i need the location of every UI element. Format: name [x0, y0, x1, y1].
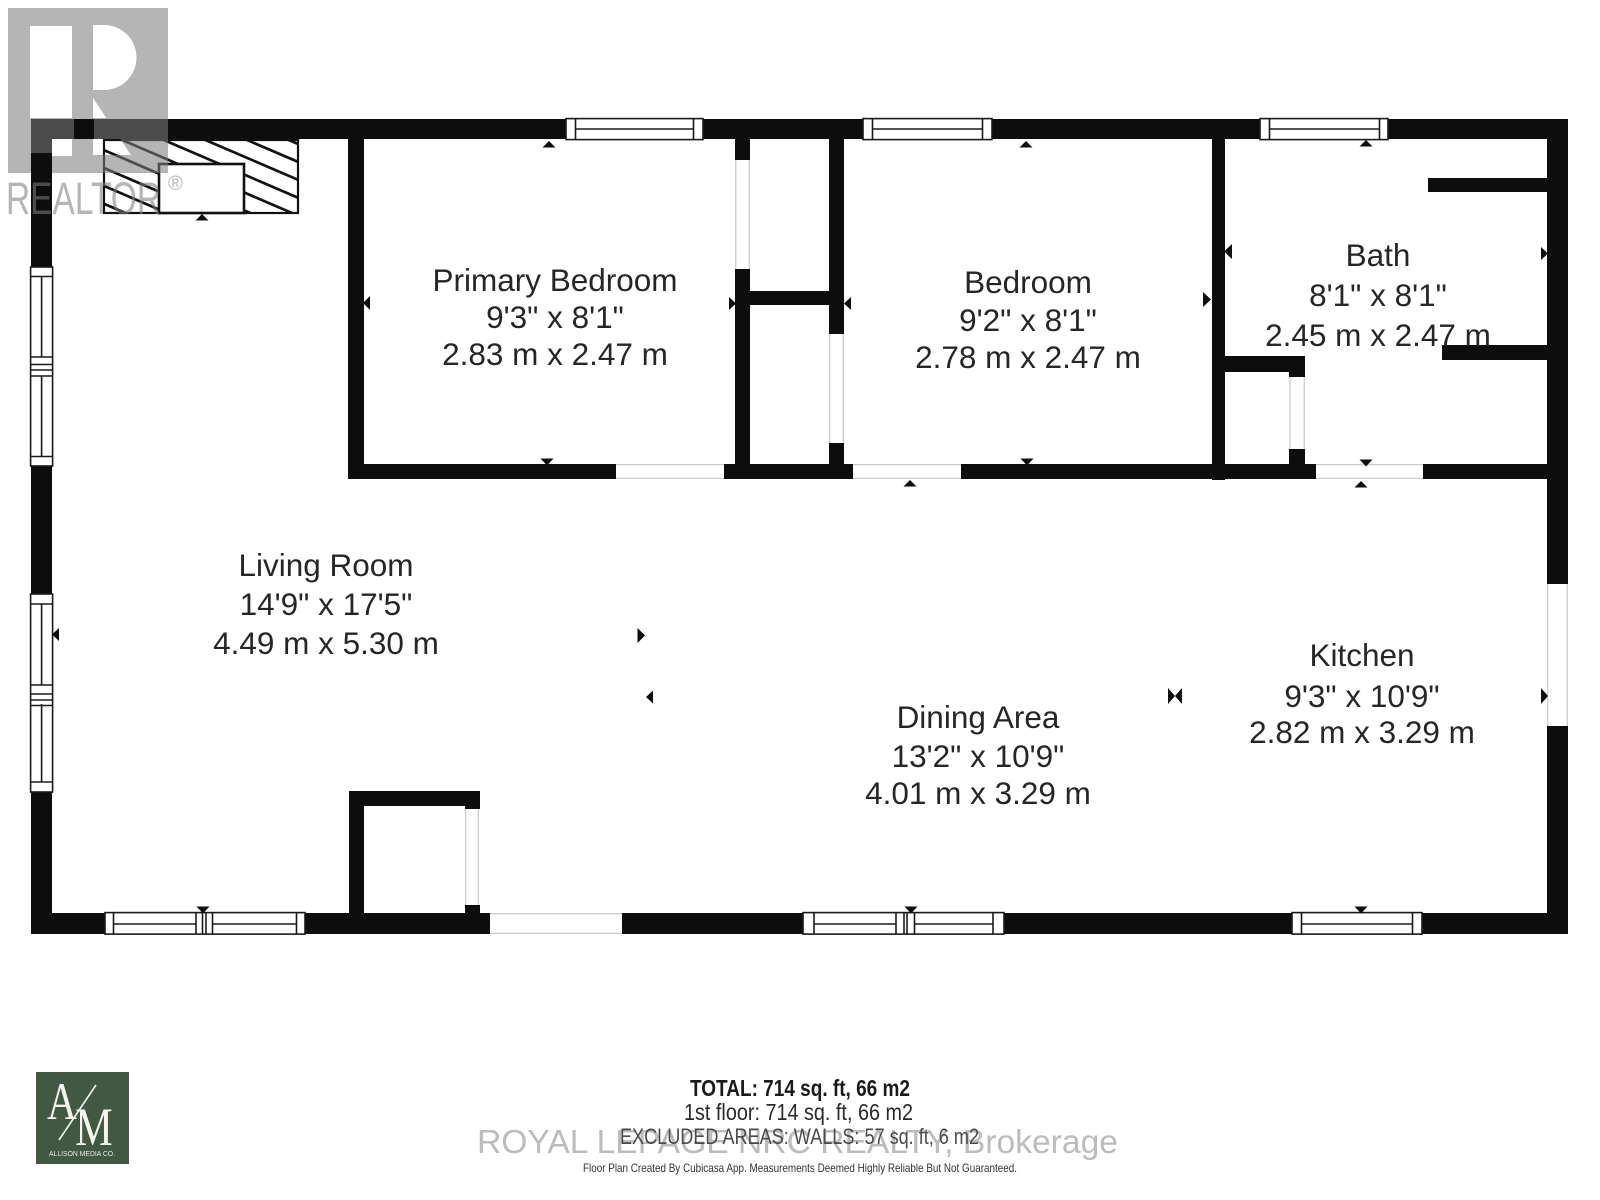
svg-text:EXCLUDED AREAS: WALLS: 57 sq.: EXCLUDED AREAS: WALLS: 57 sq. ft, 6 m2 [620, 1124, 979, 1149]
svg-text:A: A [47, 1073, 77, 1131]
svg-text:ALLISON MEDIA CO.: ALLISON MEDIA CO. [49, 1149, 115, 1158]
svg-text:Bedroom: Bedroom [964, 264, 1092, 300]
svg-text:1st floor: 714 sq. ft, 66 m2: 1st floor: 714 sq. ft, 66 m2 [684, 1099, 913, 1125]
svg-text:9'3" x 10'9": 9'3" x 10'9" [1284, 678, 1439, 714]
svg-text:4.49 m x 5.30 m: 4.49 m x 5.30 m [213, 625, 439, 661]
svg-text:®: ® [168, 173, 183, 195]
svg-text:2.82 m x 3.29 m: 2.82 m x 3.29 m [1249, 714, 1475, 750]
svg-text:Kitchen: Kitchen [1309, 637, 1414, 673]
svg-text:Bath: Bath [1346, 237, 1411, 273]
svg-text:9'2" x 8'1": 9'2" x 8'1" [959, 302, 1097, 338]
svg-text:TOTAL: 714 sq. ft, 66 m2: TOTAL: 714 sq. ft, 66 m2 [690, 1075, 910, 1101]
svg-text:Living Room: Living Room [238, 547, 413, 583]
svg-text:Primary Bedroom: Primary Bedroom [432, 262, 677, 298]
svg-text:2.83 m x 2.47 m: 2.83 m x 2.47 m [442, 336, 668, 372]
svg-text:Floor Plan Created By Cubicasa: Floor Plan Created By Cubicasa App. Meas… [583, 1161, 1017, 1175]
svg-text:2.78 m x 2.47 m: 2.78 m x 2.47 m [915, 339, 1141, 375]
svg-text:14'9" x 17'5": 14'9" x 17'5" [240, 586, 413, 622]
svg-text:8'1" x 8'1": 8'1" x 8'1" [1309, 277, 1447, 313]
svg-text:13'2" x 10'9": 13'2" x 10'9" [892, 738, 1065, 774]
svg-text:REALTOR: REALTOR [6, 173, 161, 224]
svg-text:2.45 m x 2.47 m: 2.45 m x 2.47 m [1265, 317, 1491, 353]
svg-text:9'3" x 8'1": 9'3" x 8'1" [486, 299, 624, 335]
svg-text:Dining Area: Dining Area [897, 699, 1060, 735]
svg-text:4.01 m x 3.29 m: 4.01 m x 3.29 m [865, 775, 1091, 811]
